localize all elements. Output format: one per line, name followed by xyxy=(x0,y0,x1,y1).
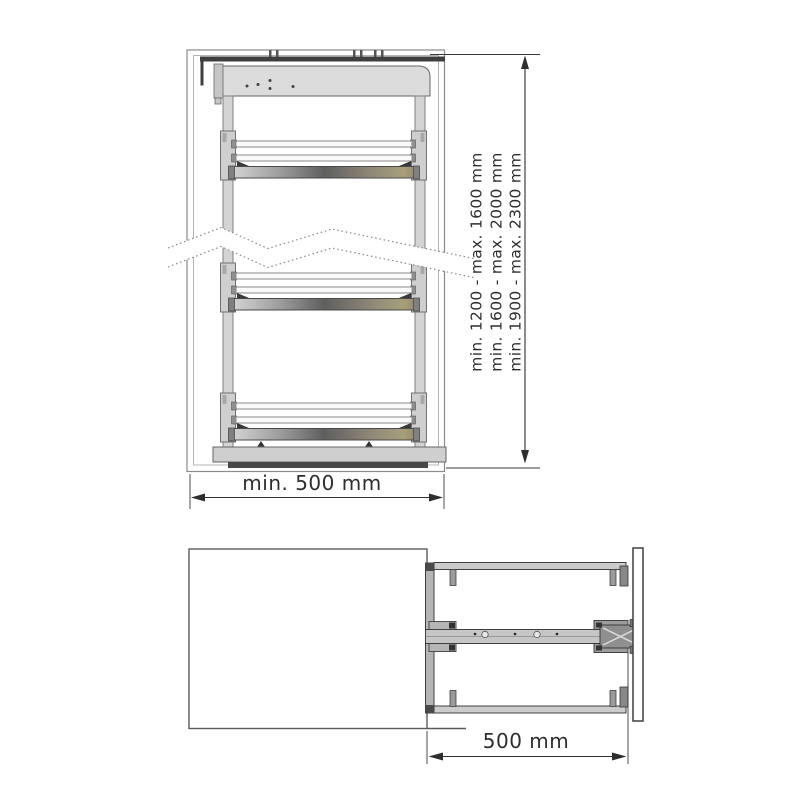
arrow-right-icon xyxy=(429,494,443,502)
height-dimension-label-1: min. 1200 - max. 1600 mm xyxy=(467,152,485,371)
top-view: 500 mm xyxy=(189,548,643,764)
arrow-left-icon xyxy=(191,494,205,502)
arrow-up-icon xyxy=(521,56,529,70)
front-view: min. 1200 - max. 1600 mm min. 1600 - max… xyxy=(168,50,540,509)
arrow-right-icon xyxy=(612,753,627,761)
width-dimension-label: min. 500 mm xyxy=(242,471,381,495)
frame-top-bar xyxy=(434,563,626,570)
slide-rail xyxy=(426,620,642,654)
technical-drawing-page: min. 1200 - max. 1600 mm min. 1600 - max… xyxy=(0,0,800,800)
door-panel xyxy=(633,548,643,721)
arrow-down-icon xyxy=(521,450,529,464)
pullout-unit-drawing: min. 1200 - max. 1600 mm min. 1600 - max… xyxy=(0,0,800,800)
height-dimension-label-3: min. 1900 - max. 2300 mm xyxy=(506,152,524,371)
top-view-cabinet xyxy=(189,549,466,729)
header-left-bracket xyxy=(214,64,223,98)
height-dimension-label-2: min. 1600 - max. 2000 mm xyxy=(487,152,505,371)
depth-dimension-label: 500 mm xyxy=(483,729,570,753)
width-dimension: min. 500 mm xyxy=(190,471,444,509)
frame-bottom-bar xyxy=(434,706,626,713)
arrow-left-icon xyxy=(429,753,444,761)
height-dimension: min. 1200 - max. 1600 mm min. 1600 - max… xyxy=(446,56,540,469)
